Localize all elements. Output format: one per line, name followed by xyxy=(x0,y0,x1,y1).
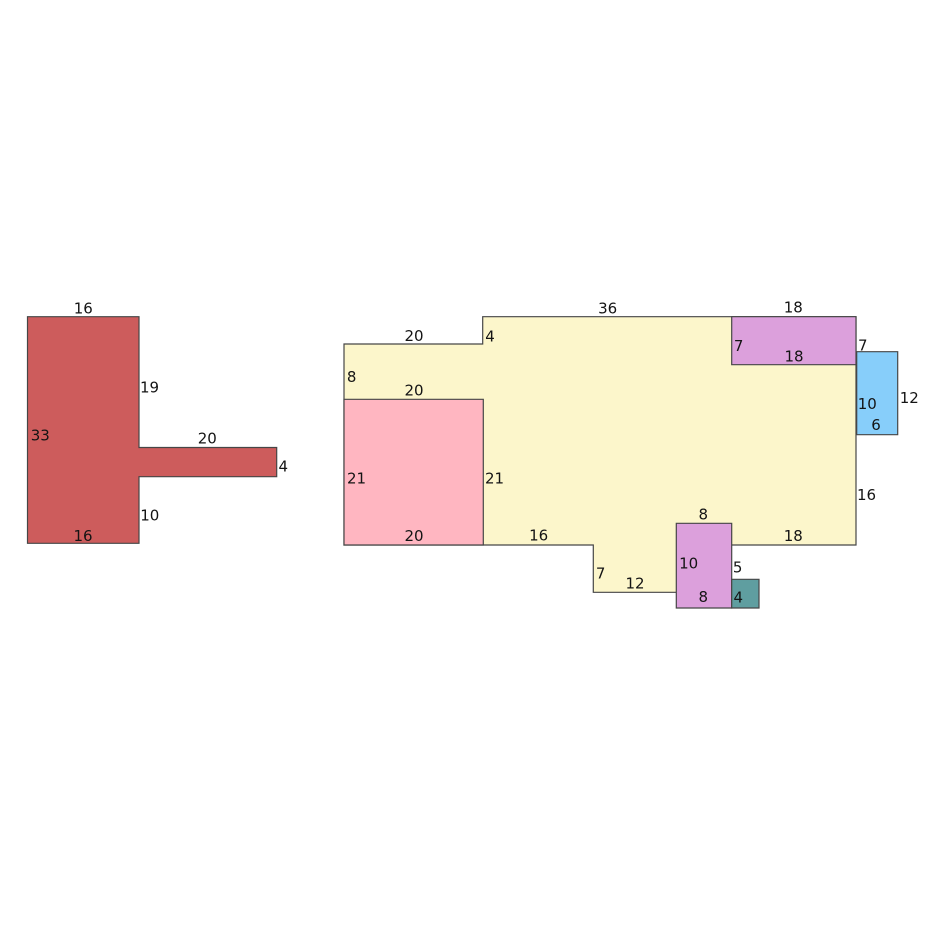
yellow-container-dimension-label-7: 18 xyxy=(784,527,803,545)
blue-piece-dimension-label-0: 10 xyxy=(858,395,877,413)
red-t-piece-dimension-label-2: 33 xyxy=(31,426,50,444)
red-t-piece-dimension-label-0: 16 xyxy=(74,299,93,317)
pink-square-piece-dimension-label-2: 21 xyxy=(485,470,504,488)
red-t-piece-dimension-label-5: 10 xyxy=(140,506,159,524)
red-t-piece-dimension-label-3: 20 xyxy=(198,430,217,448)
diagram-canvas: 1619332041016204368167121816202121201871… xyxy=(0,0,925,925)
pink-square-piece-dimension-label-3: 20 xyxy=(404,527,423,545)
yellow-container-dimension-label-1: 4 xyxy=(485,328,495,346)
purple-top-piece-dimension-label-3: 7 xyxy=(858,336,868,354)
yellow-container-dimension-label-6: 12 xyxy=(625,575,644,593)
blue-piece-dimension-label-1: 6 xyxy=(871,416,881,434)
purple-top-piece-dimension-label-1: 7 xyxy=(734,337,744,355)
purple-bottom-piece-dimension-label-1: 10 xyxy=(679,554,698,572)
purple-bottom-piece-dimension-label-2: 8 xyxy=(699,588,709,606)
purple-bottom-piece-dimension-label-0: 8 xyxy=(699,505,709,523)
red-t-piece-dimension-label-6: 16 xyxy=(73,527,92,545)
red-t-piece-dimension-label-1: 19 xyxy=(140,378,159,396)
yellow-container-dimension-label-5: 7 xyxy=(596,564,606,582)
pink-square-piece-dimension-label-1: 21 xyxy=(347,469,366,487)
yellow-container-dimension-label-4: 16 xyxy=(529,527,548,545)
yellow-container-dimension-label-8: 16 xyxy=(857,486,876,504)
teal-square-piece-dimension-label-0: 4 xyxy=(734,588,744,606)
purple-top-piece-dimension-label-2: 18 xyxy=(784,348,803,366)
yellow-container-dimension-label-0: 20 xyxy=(404,327,423,345)
yellow-container-dimension-label-3: 8 xyxy=(347,368,357,386)
pink-square-piece-dimension-label-0: 20 xyxy=(404,381,423,399)
purple-top-piece-dimension-label-0: 18 xyxy=(784,299,803,317)
figure-stage: 1619332041016204368167121816202121201871… xyxy=(0,0,925,925)
purple-bottom-piece-dimension-label-3: 5 xyxy=(733,559,743,577)
red-t-piece-dimension-label-4: 4 xyxy=(279,458,289,476)
yellow-container-dimension-label-2: 36 xyxy=(598,299,617,317)
blue-piece-dimension-label-2: 12 xyxy=(900,389,919,407)
